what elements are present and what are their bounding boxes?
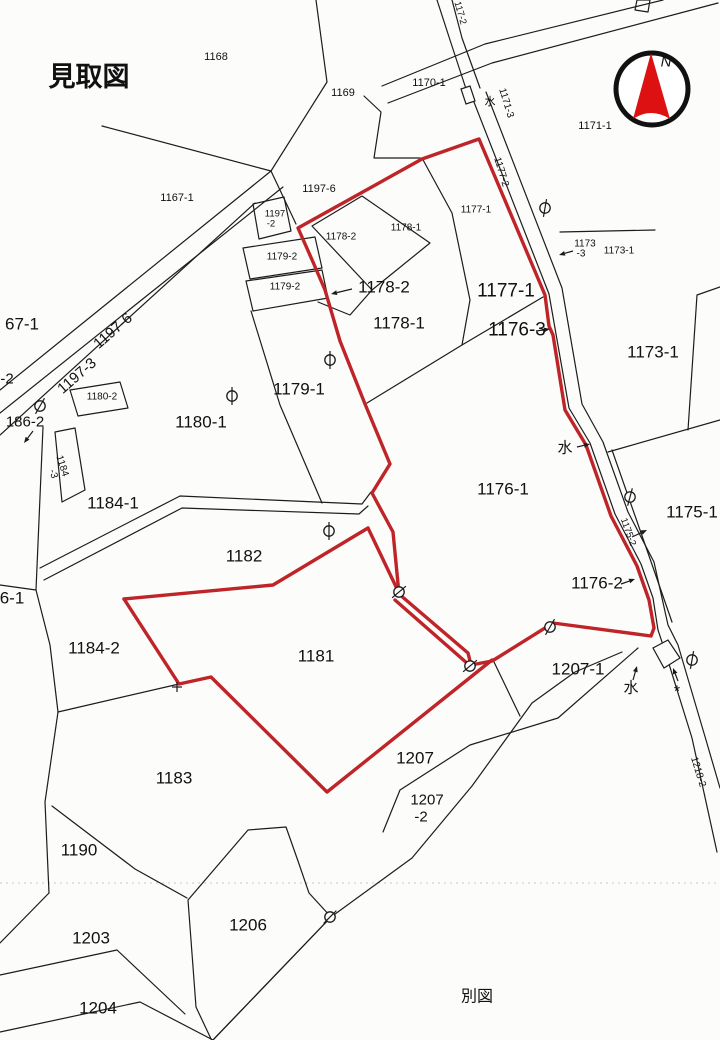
label-1180-2: 1180-2 [87,392,118,403]
label-186-2: 186-2 [6,414,44,431]
label-1176-1: 1176-1 [477,480,529,499]
leader-arrow-icon [559,251,573,256]
label-minus2-edge: -2 [0,371,13,388]
leader-arrow-icon [24,431,33,443]
label-1177-1-small: 1177-1 [461,205,492,216]
label-1207-2a: 1207 [410,792,443,809]
label-1179-2a: 1179-2 [267,252,298,263]
label-1181: 1181 [298,647,335,666]
boundary-marker-icon [227,387,237,405]
label-1204: 1204 [79,999,117,1018]
boundary-marker-icon [320,907,340,927]
label-1206: 1206 [229,916,267,935]
red-boundary-corridor [395,600,468,664]
water-box-symbol [461,86,475,104]
red-boundary-layer [124,139,654,792]
boundary-marker-icon [324,522,334,540]
label-1178-1-small: 1178-1 [391,223,422,234]
label-1170-1: 1170-1 [412,77,445,89]
label-1173-1-big: 1173-1 [627,343,679,362]
label-1183: 1183 [156,769,193,788]
label-1207-2b: -2 [414,809,427,826]
label-1175-1: 1175-1 [666,503,718,522]
label-water-top: 水 [485,95,496,108]
leader-arrow-icon [633,666,638,680]
north-compass [616,53,688,125]
compass-n-label: N [661,54,672,71]
boundary-marker-icon [538,198,551,218]
label-1203: 1203 [72,929,110,948]
label-1177-1-big: 1177-1 [477,281,535,302]
label-1190: 1190 [61,841,98,860]
label-1184-1: 1184-1 [87,494,139,513]
label-117-2-rot: 117-2 [451,0,468,26]
map-title: 見取図 [49,62,130,92]
cadastral-sketch-map: 見取図116811691170-11171-11167-11197-61197-… [0,0,720,1040]
label-1179-1: 1179-1 [273,380,325,399]
road-stub-bridge [653,640,680,668]
label-1197-6-rot: 1197-6 [90,310,136,353]
label-1184-2: 1184-2 [68,639,120,658]
label-1178-1-big: 1178-1 [373,314,425,333]
label-1179-2b: 1179-2 [270,282,301,293]
label-1180-1: 1180-1 [175,413,227,432]
label-asterisk-bottom: * [674,684,680,701]
label-1176-2: 1176-2 [571,574,623,593]
label-1173b: -3 [577,249,586,260]
label-water-bottom: 水 [623,680,638,697]
label-1207: 1207 [396,749,434,768]
label-1169: 1169 [331,87,355,99]
label-1176-3: 1176-3 [488,320,546,341]
label-1171-1: 1171-1 [578,120,611,132]
leader-arrow-icon [331,289,352,295]
label-6-1: 6-1 [0,589,24,608]
label-1218-2-rot: 1218-2 [688,756,708,789]
label-1197-2b: -2 [267,219,275,230]
boundary-marker-icon [325,351,335,369]
label-1173-1-small: 1173-1 [604,246,635,257]
label-1171-3-rot: 1171-3 [496,87,516,120]
map-svg: 見取図116811691170-11171-11167-11197-61197-… [0,0,720,1040]
label-1207-1: 1207-1 [552,660,605,679]
label-67-1: 67-1 [5,315,39,334]
label-1167-1: 1167-1 [160,192,193,204]
label-1178-2-small: 1178-2 [326,232,357,243]
boundary-marker-icon [685,650,698,670]
label-1182: 1182 [226,547,263,566]
label-1178-2-big: 1178-2 [358,278,410,297]
leader-arrow-icon [621,579,635,584]
label-water-mid: 水 [557,440,572,457]
separate-map-note: 別図 [461,988,493,1006]
label-1197-6-small: 1197-6 [302,183,335,195]
label-1184-3b: -3 [46,468,59,480]
label-1168: 1168 [204,51,228,63]
